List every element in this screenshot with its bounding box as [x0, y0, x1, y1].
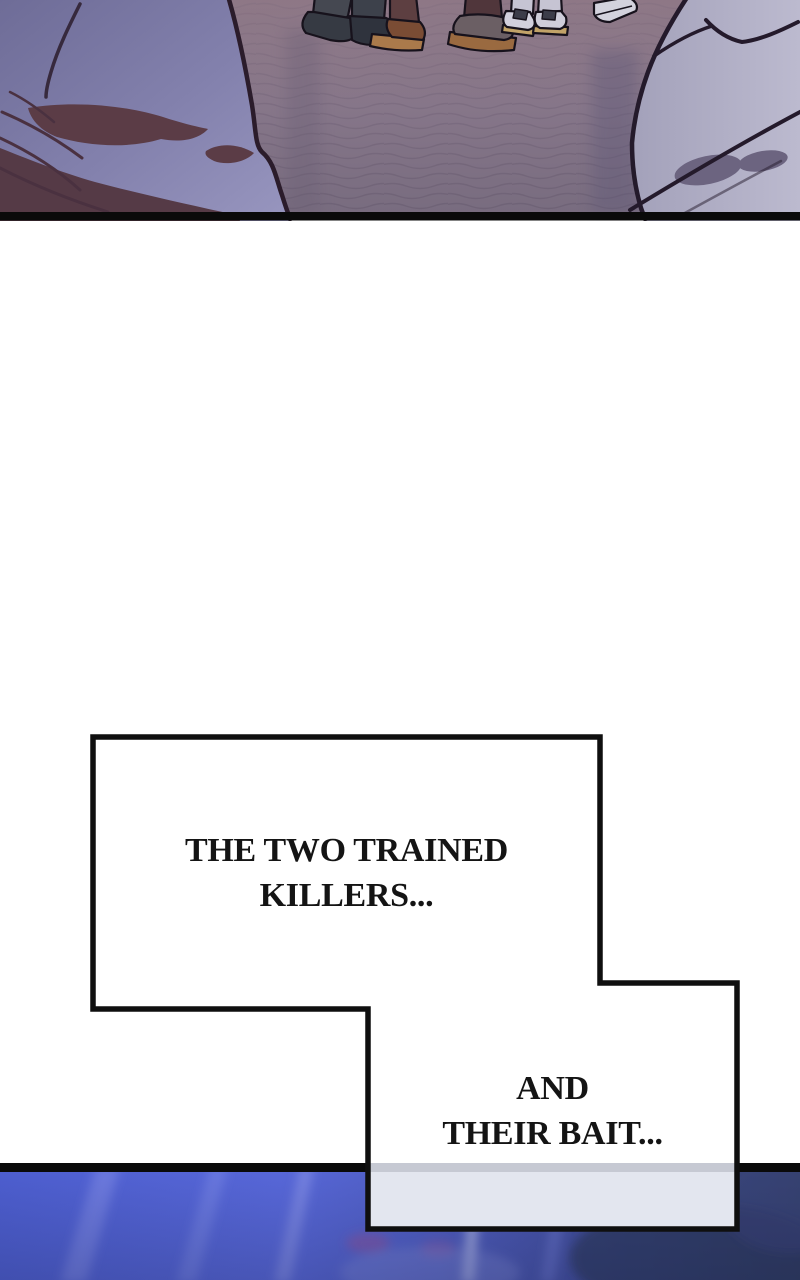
- speech-line: KILLERS...: [260, 873, 434, 918]
- speech-line: THE TWO TRAINED: [185, 828, 508, 873]
- speech-box-2-text: AND THEIR BAIT...: [368, 983, 737, 1239]
- panel-top-border: [0, 212, 800, 221]
- panel-top-illustration: [0, 0, 800, 221]
- speech-box-1-text: THE TWO TRAINED KILLERS...: [93, 737, 600, 1009]
- comic-page: THE TWO TRAINED KILLERS... AND THEIR BAI…: [0, 0, 800, 1280]
- speech-line: THEIR BAIT...: [442, 1111, 662, 1156]
- speech-line: AND: [516, 1066, 589, 1111]
